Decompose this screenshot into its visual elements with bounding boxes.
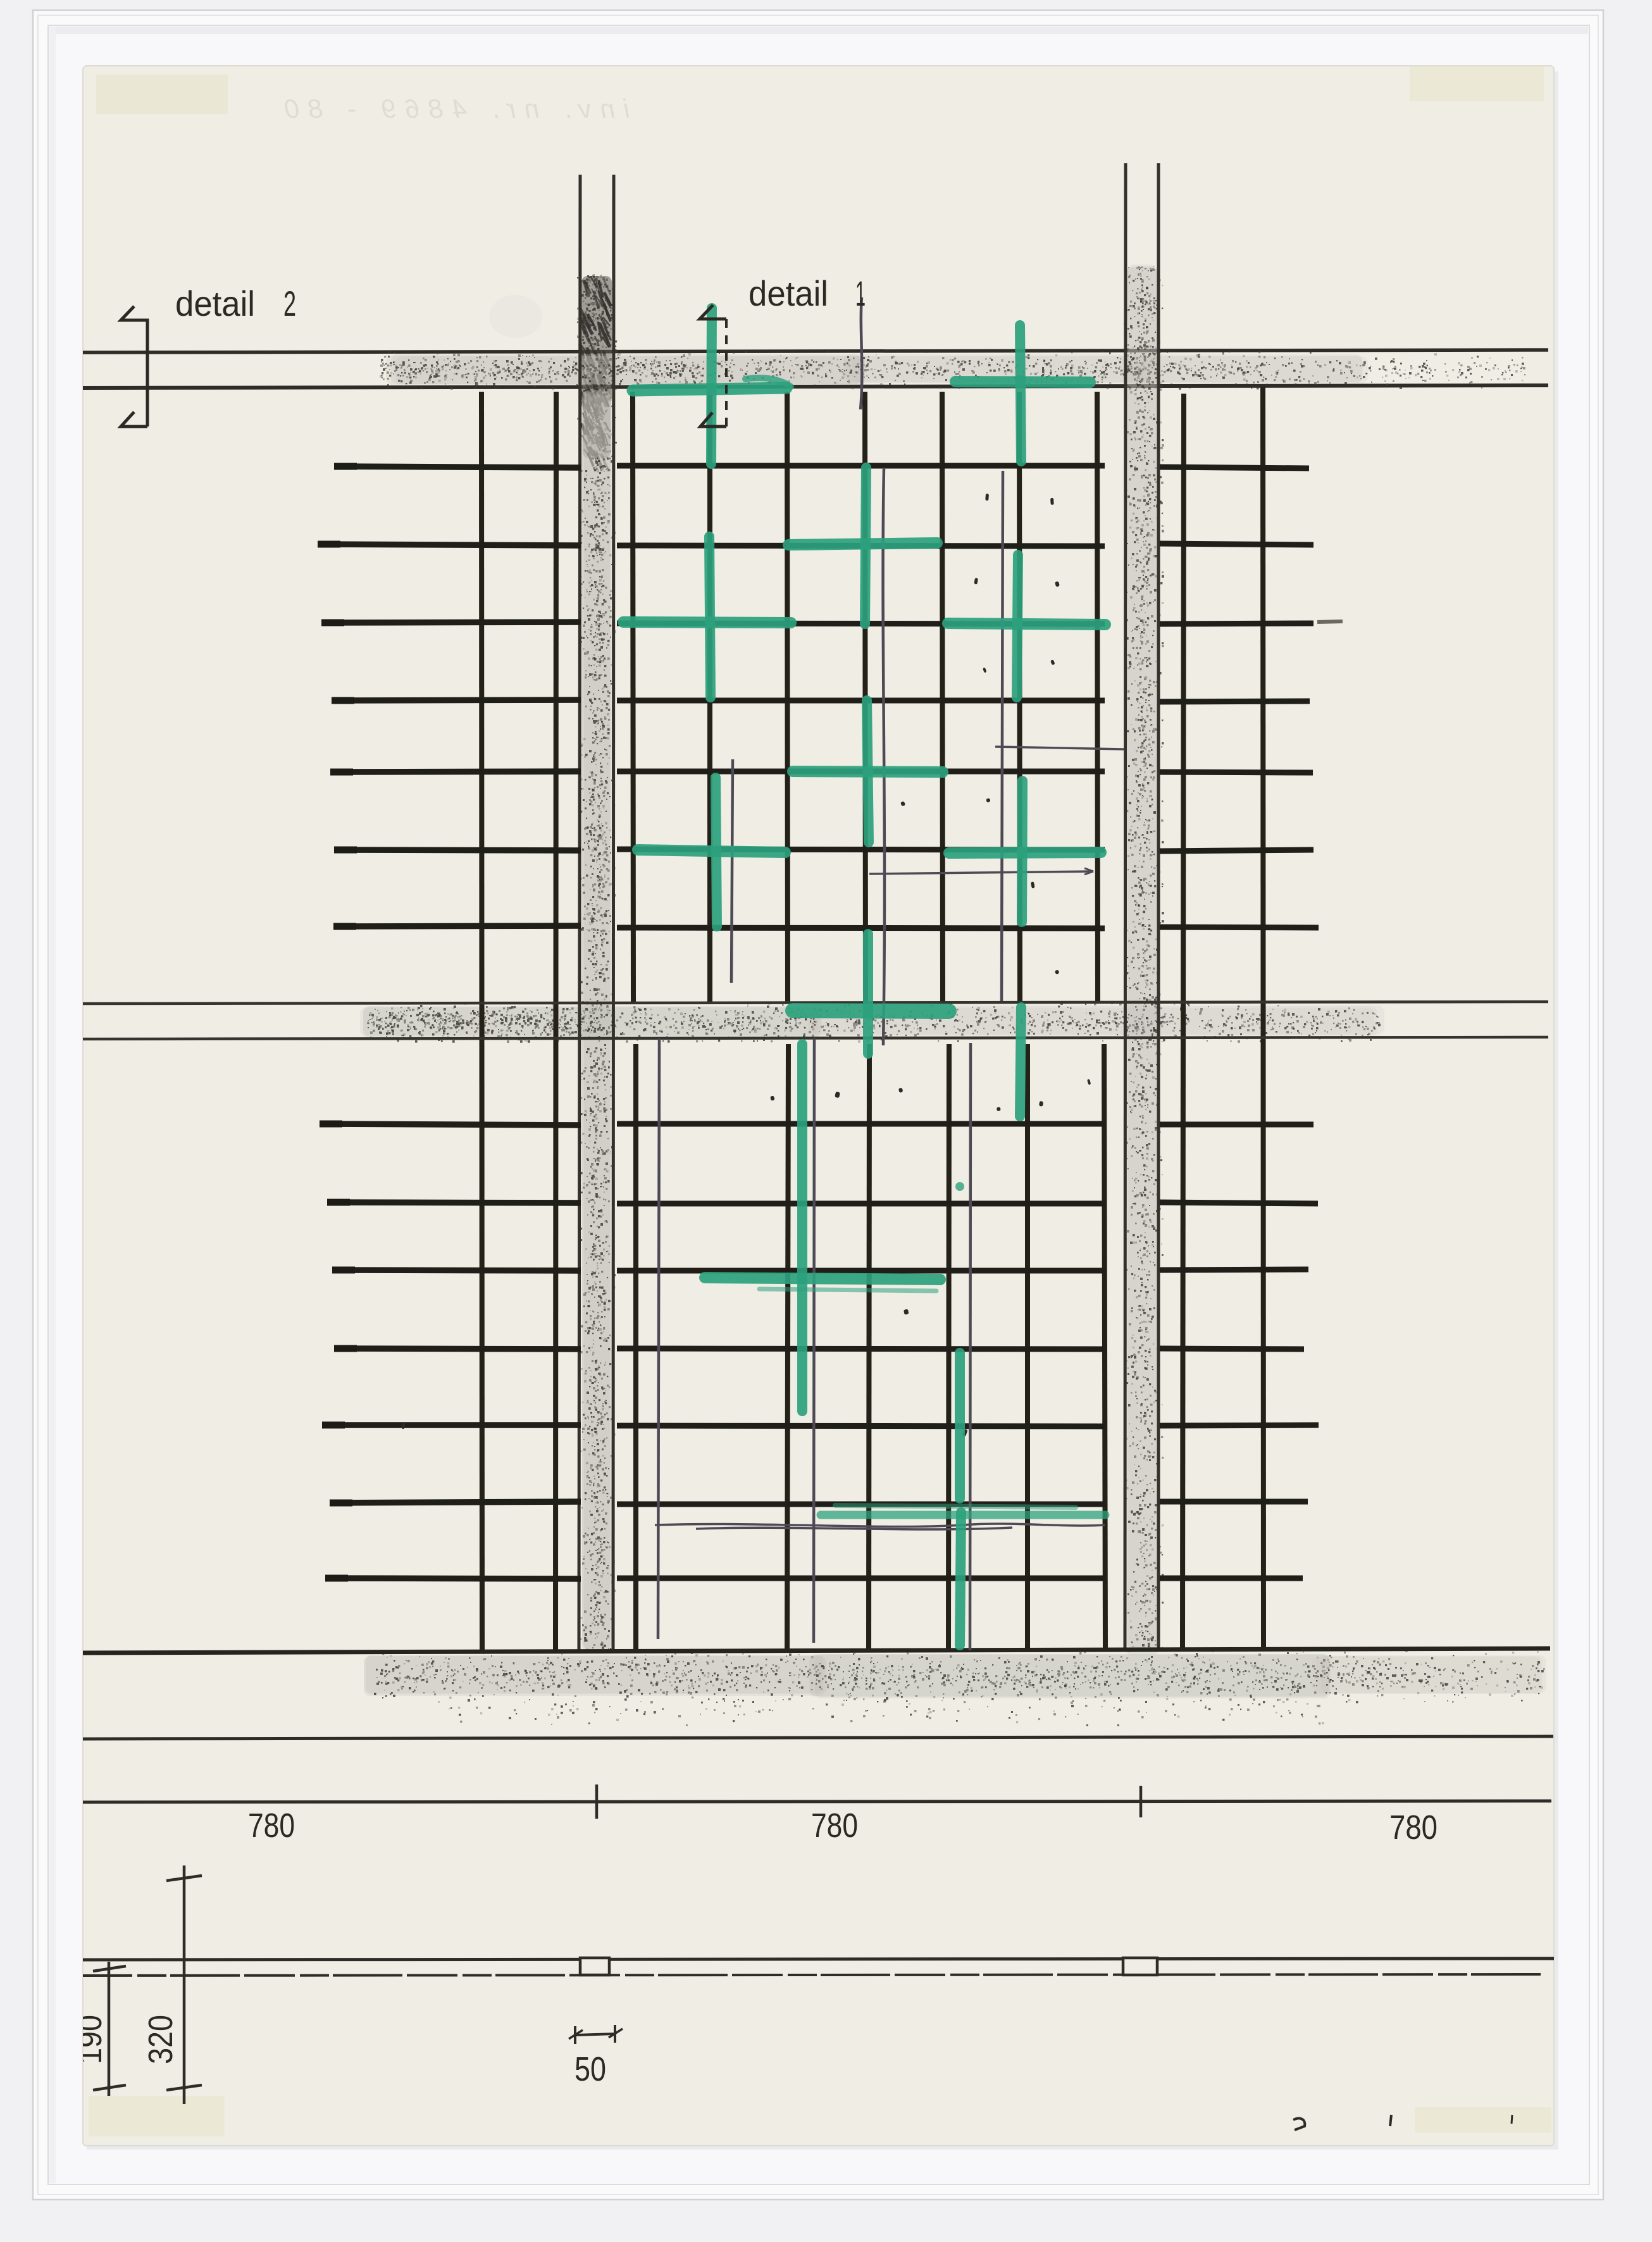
svg-text:320: 320 bbox=[142, 2015, 180, 2064]
svg-text:780: 780 bbox=[248, 1807, 295, 1845]
svg-text:780: 780 bbox=[811, 1807, 858, 1845]
svg-text:detail: detail bbox=[175, 283, 255, 323]
svg-text:2: 2 bbox=[283, 283, 296, 323]
svg-text:1: 1 bbox=[855, 273, 866, 313]
svg-text:detail: detail bbox=[748, 273, 828, 313]
svg-text:780: 780 bbox=[1389, 1809, 1438, 1847]
svg-text:50: 50 bbox=[574, 2050, 606, 2088]
